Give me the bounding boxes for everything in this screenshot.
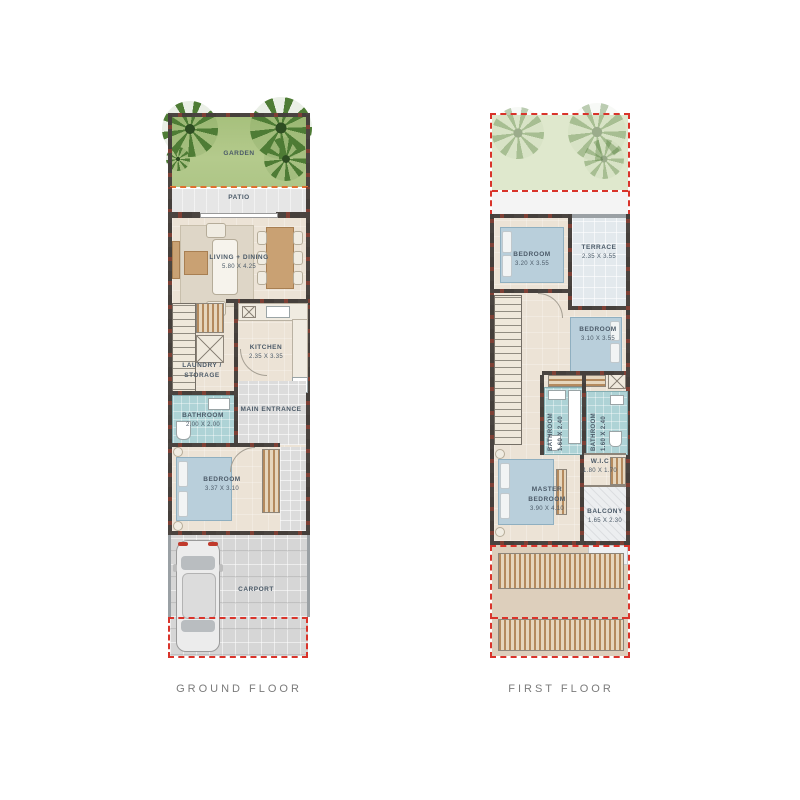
closet: [548, 375, 606, 387]
dining-chair: [293, 271, 303, 285]
toilet: [609, 431, 622, 447]
car-mirror: [173, 564, 177, 572]
terrace-area: [572, 218, 626, 310]
bathroom-label: BATHROOM 2.00 X 2.00: [170, 411, 236, 430]
ground-floor-caption: GROUND FLOOR: [158, 683, 320, 695]
storage-unit: [608, 373, 626, 389]
bedroom1-label: BEDROOM 3.20 X 3.55: [492, 250, 572, 269]
car-mirror: [219, 564, 223, 572]
kitchen-sink: [266, 306, 290, 318]
kitchen-label: KITCHEN 2.35 X 3.35: [228, 343, 304, 362]
car-taillight: [178, 542, 188, 546]
wic-divider: [584, 453, 626, 455]
room-name: MAIN ENTRANCE: [240, 405, 302, 415]
car-rear-window: [181, 556, 215, 570]
stove: [242, 306, 256, 318]
balcony-label: BALCONY 1.65 X 2.30: [582, 507, 628, 526]
interior-wall: [490, 289, 570, 293]
bed-pillow: [500, 493, 510, 519]
storage-closet: [196, 303, 224, 333]
laundry-storage-label: LAUNDRY / STORAGE: [168, 361, 236, 381]
nightstand: [495, 527, 505, 537]
bathroom1-label: BATHROOM 1.60 X 2.40: [547, 395, 566, 451]
dining-chair: [293, 231, 303, 245]
nightstand: [173, 521, 183, 531]
room-name: W.I.C: [578, 457, 622, 467]
car-taillight: [208, 542, 218, 546]
bed-pillow: [178, 491, 188, 517]
exterior-wall: [168, 113, 310, 117]
room-name: BEDROOM: [172, 475, 272, 485]
room-name: PATIO: [168, 193, 310, 203]
room-name: LIVING + DINING: [168, 253, 310, 263]
armchair: [206, 223, 226, 238]
living-dining-label: LIVING + DINING 5.80 X 4.25: [168, 253, 310, 272]
room-dims: 1.65 X 2.30: [582, 517, 628, 526]
room-dims: 1.60 X 2.40: [557, 395, 567, 451]
room-dims: 3.20 X 3.55: [492, 260, 572, 269]
exterior-wall: [626, 214, 630, 545]
room-name: BEDROOM: [560, 325, 636, 335]
staircase: [172, 303, 196, 397]
entry-porch: [280, 447, 306, 531]
master-bedroom-label: MASTER BEDROOM 3.90 X 4.10: [518, 485, 576, 514]
room-dims: 3.37 X 3.10: [172, 485, 272, 494]
room-name: LAUNDRY / STORAGE: [168, 361, 236, 381]
room-name: BATHROOM: [590, 399, 600, 451]
bathroom-sink: [610, 395, 624, 405]
exterior-wall: [490, 214, 572, 218]
room-name: GARDEN: [168, 149, 310, 159]
bed-pillow: [610, 343, 620, 363]
nightstand: [173, 447, 183, 457]
carport-label: CARPORT: [212, 585, 300, 595]
room-name: BATHROOM: [170, 411, 236, 421]
storage-unit: [196, 335, 224, 363]
plot-boundary-dashed: [168, 617, 308, 658]
bedroom-label: BEDROOM 3.37 X 3.10: [172, 475, 272, 494]
room-name: BATHROOM: [547, 395, 557, 451]
room-name: BALCONY: [582, 507, 628, 517]
first-floor-plan: BEDROOM 3.20 X 3.55 TERRACE 2.35 X 3.55 …: [490, 113, 630, 658]
room-name: BEDROOM: [492, 250, 572, 260]
dining-chair: [257, 231, 267, 245]
room-name: TERRACE: [572, 243, 626, 253]
room-dims: 2.00 X 2.00: [170, 421, 236, 430]
main-entrance-label: MAIN ENTRANCE: [240, 405, 302, 415]
staircase: [494, 295, 522, 445]
ground-floor-plan: GARDEN PATIO LIVING + DINING 5.80 X 4.25…: [168, 113, 310, 658]
garden-label: GARDEN: [168, 149, 310, 159]
car-roof: [182, 573, 216, 619]
garden-boundary-dashed: [492, 190, 628, 192]
side-wall: [168, 535, 171, 617]
plot-boundary-dashed: [490, 545, 630, 658]
garden-patio-boundary: [170, 186, 308, 188]
terrace-label: TERRACE 2.35 X 3.55: [572, 243, 626, 262]
patio-label: PATIO: [168, 193, 310, 203]
wic-label: W.I.C 1.80 X 1.70: [578, 457, 622, 476]
side-wall: [307, 535, 310, 617]
dining-chair: [257, 271, 267, 285]
room-dims: 3.90 X 4.10: [518, 505, 576, 514]
bedroom2-label: BEDROOM 3.10 X 3.55: [560, 325, 636, 344]
interior-wall: [168, 443, 280, 447]
room-dims: 2.35 X 3.55: [572, 253, 626, 262]
plot-boundary-dashed: [490, 113, 630, 216]
nightstand: [495, 449, 505, 459]
room-dims: 1.60 X 2.40: [600, 399, 610, 451]
room-name: CARPORT: [212, 585, 300, 595]
room-dims: 3.10 X 3.55: [560, 335, 636, 344]
room-name: KITCHEN: [228, 343, 304, 353]
bathtub: [568, 390, 581, 444]
palm-tree: [264, 137, 308, 181]
bathroom2-label: BATHROOM 1.60 X 2.40: [590, 399, 609, 451]
first-floor-caption: FIRST FLOOR: [480, 683, 642, 695]
bathroom-sink: [208, 398, 230, 410]
interior-wall: [568, 306, 630, 310]
roof-boundary-dashed: [492, 617, 628, 619]
floorplan-page: { "ground_floor": { "title": "GROUND FLO…: [0, 0, 800, 800]
room-dims: 2.35 X 3.35: [228, 353, 304, 362]
bed-pillow: [500, 463, 510, 489]
room-name: MASTER BEDROOM: [518, 485, 576, 505]
room-dims: 1.80 X 1.70: [578, 467, 622, 476]
room-dims: 5.80 X 4.25: [168, 263, 310, 272]
